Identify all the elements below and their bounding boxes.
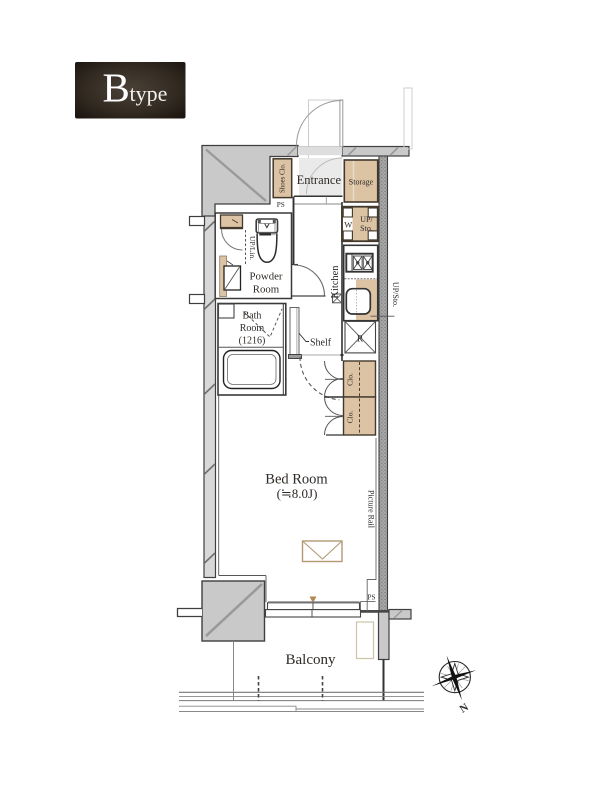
svg-text:Room: Room: [240, 323, 265, 334]
svg-text:W: W: [344, 220, 352, 230]
svg-text:PS: PS: [368, 594, 376, 602]
svg-text:UP/Sto.: UP/Sto.: [391, 282, 400, 307]
svg-text:UP/: UP/: [360, 215, 373, 224]
svg-text:Bath: Bath: [243, 311, 262, 322]
svg-text:UP/Lin.: UP/Lin.: [248, 236, 257, 260]
svg-text:Clo.: Clo.: [346, 411, 355, 424]
svg-text:type: type: [130, 81, 168, 106]
svg-text:PS: PS: [277, 201, 285, 209]
svg-text:(≒8.0J): (≒8.0J): [277, 486, 318, 501]
svg-text:B: B: [103, 65, 130, 111]
svg-text:Clo.: Clo.: [346, 373, 355, 386]
svg-text:Shelf: Shelf: [310, 338, 332, 349]
svg-text:Balcony: Balcony: [286, 652, 336, 668]
svg-text:Entrance: Entrance: [297, 173, 342, 187]
svg-text:N: N: [458, 701, 471, 715]
svg-text:Shoes Clo.: Shoes Clo.: [279, 163, 286, 193]
svg-text:R: R: [357, 335, 364, 345]
svg-text:(1216): (1216): [239, 336, 266, 347]
svg-text:Kitchen: Kitchen: [330, 265, 341, 299]
svg-text:Room: Room: [253, 284, 280, 296]
svg-text:Storage: Storage: [349, 178, 374, 187]
svg-text:Powder: Powder: [250, 271, 283, 283]
svg-text:Picture Rail: Picture Rail: [367, 490, 376, 529]
svg-text:Sto.: Sto.: [360, 224, 373, 233]
